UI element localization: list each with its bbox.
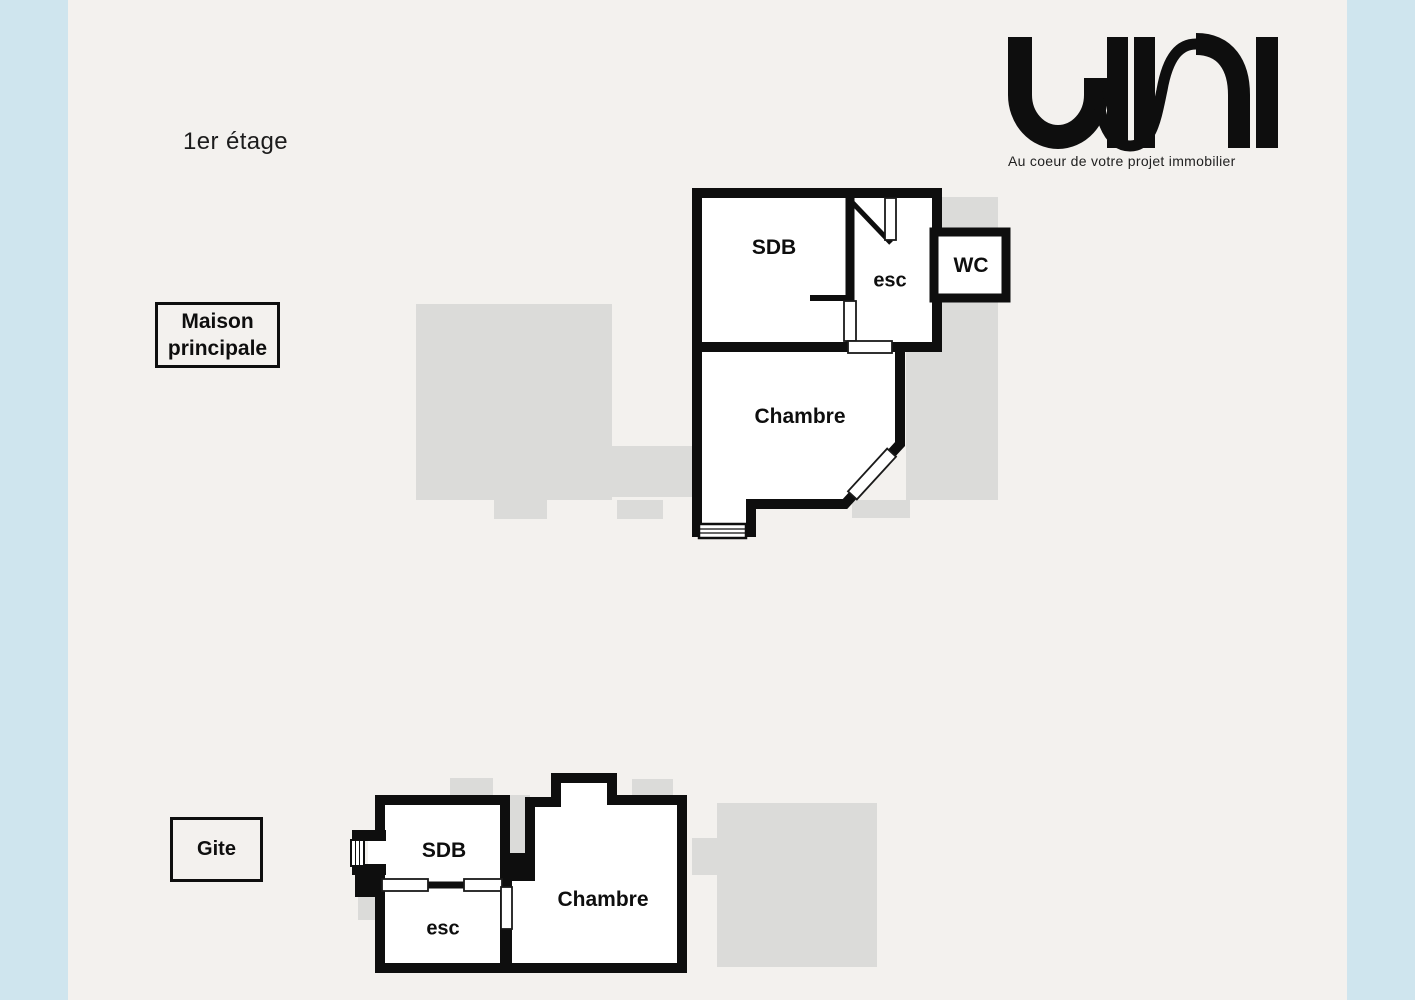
silhouette-left-arm xyxy=(612,446,692,497)
logo-bar-3 xyxy=(1256,37,1278,148)
right-blue-panel xyxy=(1347,0,1415,1000)
maison-door-esc-chambre xyxy=(848,341,892,353)
logo-bar-1 xyxy=(1107,37,1128,148)
room-label-gite-esc: esc xyxy=(426,918,459,941)
room-label-maison-wc: WC xyxy=(954,254,989,278)
maison-stair-diagonal xyxy=(849,199,891,243)
gite-plan xyxy=(351,778,682,968)
gite-silhouette-gap xyxy=(508,795,530,861)
silhouette-left-tab1 xyxy=(494,500,547,519)
maison-door-diagonal xyxy=(848,449,896,500)
maison-label-box: Maison principale xyxy=(155,302,280,368)
silhouette-bottom-tab xyxy=(852,500,910,518)
silhouette-right-block xyxy=(906,197,998,500)
gite-door-esc-chambre xyxy=(501,887,512,929)
gite-window-bay xyxy=(351,830,388,897)
maison-window xyxy=(699,524,746,538)
gite-chambre-walls xyxy=(507,778,682,968)
gite-silhouette-right-block xyxy=(717,803,877,967)
left-blue-panel xyxy=(0,0,68,1000)
room-label-maison-esc: esc xyxy=(873,270,906,293)
silhouette-left-tab2 xyxy=(617,500,663,519)
silhouette-left-block xyxy=(416,304,612,500)
maison-door-sdb xyxy=(844,301,856,341)
logo-tagline: Au coeur de votre projet immobilier xyxy=(1008,153,1278,169)
gite-left-block-walls xyxy=(380,800,505,968)
logo-bar-2 xyxy=(1134,37,1155,148)
gite-silhouette-arm xyxy=(692,838,717,875)
uni-logo-mark xyxy=(1020,37,1278,148)
gite-connector-wall xyxy=(502,853,535,881)
logo-n-arch xyxy=(1196,44,1239,148)
gite-door-sdb-right xyxy=(464,879,502,891)
maison-label-line1: Maison xyxy=(181,308,253,335)
logo-u xyxy=(1020,37,1096,137)
room-label-maison-chambre: Chambre xyxy=(754,405,845,429)
gite-silhouette-tab1 xyxy=(450,778,493,796)
maison-door-stair xyxy=(885,198,896,240)
maison-ground-silhouette xyxy=(416,197,998,519)
gite-silhouette-tab2 xyxy=(632,779,673,801)
gite-silhouette-left-bit xyxy=(358,893,380,920)
maison-outer-walls xyxy=(697,193,937,532)
room-label-maison-sdb: SDB xyxy=(752,236,796,260)
floor-title: 1er étage xyxy=(183,128,288,156)
maison-plan xyxy=(692,193,1006,538)
gite-door-sdb-left xyxy=(382,879,428,891)
maison-label-line2: principale xyxy=(168,335,267,362)
room-label-gite-chambre: Chambre xyxy=(557,888,648,912)
gite-label: Gite xyxy=(197,838,236,861)
room-label-gite-sdb: SDB xyxy=(422,839,466,863)
gite-label-box: Gite xyxy=(170,817,263,882)
logo-swash xyxy=(1096,44,1196,146)
